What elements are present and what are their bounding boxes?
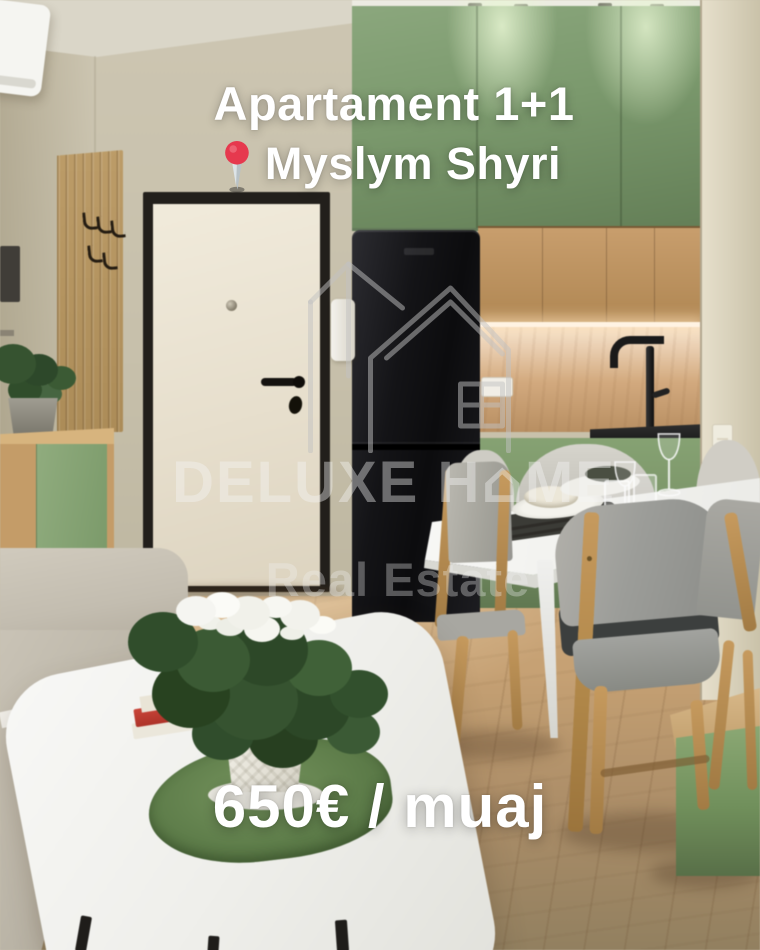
round-pushpin-icon [219,138,253,194]
ad-title: Apartament 1+1 [0,76,760,131]
cabinet-seam [542,228,543,326]
house-in-o-icon: ⌂ [481,448,525,516]
faucet [610,336,664,368]
wall-ledge [0,330,14,336]
brand-watermark-suffix: ME [525,450,616,515]
coffee-table-leg [207,936,219,950]
ad-location: Myslym Shyri [265,138,561,190]
brand-watermark-prefix: DELUXE H [172,450,481,515]
coffee-table-leg [335,920,349,950]
faucet-riser [646,346,654,432]
ad-price: 650€ / muaj [0,772,760,841]
door-peephole [226,300,237,311]
brand-tagline: Real Estate [0,552,760,607]
real-estate-ad: DELUXE H⌂ME Real Estate Apartament 1+1 M… [0,0,760,950]
cabinet-seam [606,228,607,326]
house-buildings-outline-icon [250,238,525,453]
ad-location-row: Myslym Shyri [0,138,760,194]
wall-panel [0,246,20,302]
faucet-spout [610,356,618,366]
cabinet-seam [654,228,655,326]
brand-watermark: DELUXE H⌂ME [0,448,760,516]
